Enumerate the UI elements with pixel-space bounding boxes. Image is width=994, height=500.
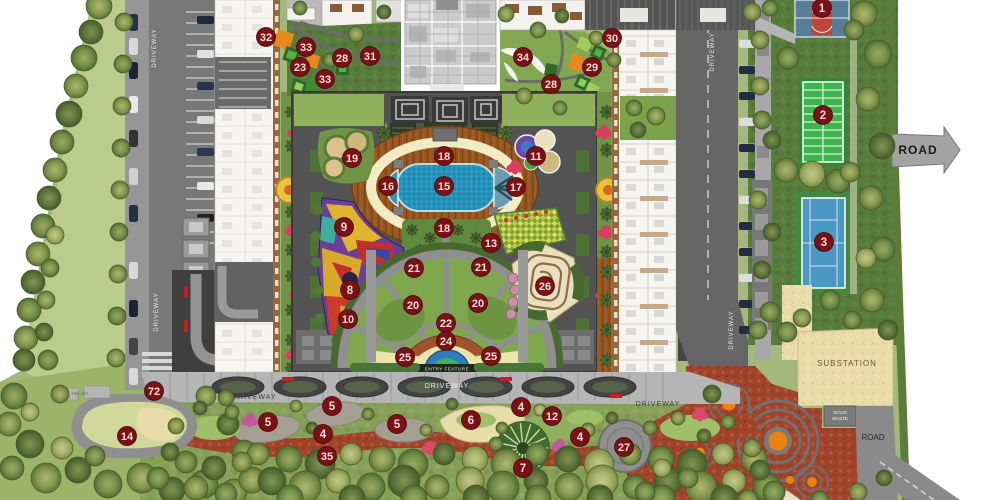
svg-text:28: 28 — [336, 53, 348, 65]
svg-text:WASTE: WASTE — [832, 416, 848, 421]
svg-text:ROAD: ROAD — [861, 433, 884, 442]
svg-text:4: 4 — [577, 432, 584, 444]
svg-text:25: 25 — [485, 351, 497, 363]
svg-text:SUBSTATION: SUBSTATION — [817, 359, 877, 368]
svg-text:5: 5 — [329, 401, 336, 413]
svg-text:2: 2 — [820, 110, 826, 122]
svg-text:18: 18 — [438, 151, 450, 163]
svg-text:12: 12 — [546, 411, 558, 423]
svg-text:SOLID: SOLID — [833, 410, 847, 415]
svg-text:26: 26 — [539, 281, 551, 293]
svg-text:7: 7 — [520, 463, 526, 475]
svg-text:27: 27 — [618, 442, 630, 454]
svg-text:35: 35 — [321, 451, 333, 463]
svg-text:8: 8 — [347, 285, 354, 297]
svg-text:20: 20 — [472, 298, 484, 310]
svg-text:20: 20 — [407, 300, 419, 312]
svg-text:22: 22 — [440, 318, 452, 330]
svg-text:13: 13 — [485, 238, 497, 250]
svg-text:21: 21 — [475, 262, 487, 274]
svg-text:11: 11 — [530, 151, 542, 163]
svg-text:6: 6 — [468, 415, 474, 427]
svg-text:10: 10 — [342, 314, 354, 326]
svg-text:17: 17 — [510, 182, 522, 194]
svg-text:32: 32 — [260, 32, 272, 44]
svg-text:DRIVEWAY: DRIVEWAY — [729, 310, 735, 349]
svg-text:14: 14 — [121, 431, 134, 443]
svg-text:4: 4 — [320, 429, 327, 441]
svg-text:30: 30 — [606, 33, 618, 45]
svg-text:DRIVEWAY: DRIVEWAY — [152, 28, 158, 67]
svg-text:16: 16 — [382, 181, 394, 193]
svg-text:DRIVEWAY: DRIVEWAY — [710, 32, 716, 71]
svg-text:23: 23 — [294, 62, 306, 74]
svg-text:DRIVEWAY: DRIVEWAY — [425, 383, 470, 390]
svg-text:DRIVEWAY: DRIVEWAY — [232, 394, 277, 401]
svg-text:72: 72 — [148, 386, 160, 398]
svg-text:FIRE EXIT: FIRE EXIT — [72, 392, 90, 396]
svg-text:28: 28 — [545, 79, 557, 91]
svg-text:9: 9 — [341, 222, 347, 234]
svg-text:4: 4 — [518, 402, 525, 414]
svg-text:ROAD: ROAD — [898, 143, 937, 157]
svg-text:1: 1 — [819, 3, 826, 15]
svg-text:15: 15 — [438, 181, 450, 193]
svg-text:24: 24 — [440, 336, 453, 348]
svg-text:DRIVEWAY: DRIVEWAY — [154, 292, 160, 331]
svg-text:25: 25 — [399, 352, 411, 364]
svg-text:19: 19 — [346, 153, 358, 165]
svg-text:5: 5 — [265, 417, 272, 429]
svg-text:33: 33 — [319, 74, 331, 86]
svg-text:18: 18 — [438, 223, 450, 235]
svg-text:3: 3 — [821, 237, 827, 249]
svg-text:DRIVEWAY: DRIVEWAY — [636, 401, 681, 408]
svg-text:5: 5 — [394, 419, 401, 431]
svg-text:21: 21 — [408, 263, 420, 275]
svg-text:ENTRY FEATURE: ENTRY FEATURE — [425, 367, 469, 372]
svg-text:29: 29 — [586, 62, 598, 74]
svg-text:31: 31 — [364, 51, 376, 63]
svg-text:33: 33 — [300, 42, 312, 54]
svg-text:34: 34 — [517, 52, 530, 64]
